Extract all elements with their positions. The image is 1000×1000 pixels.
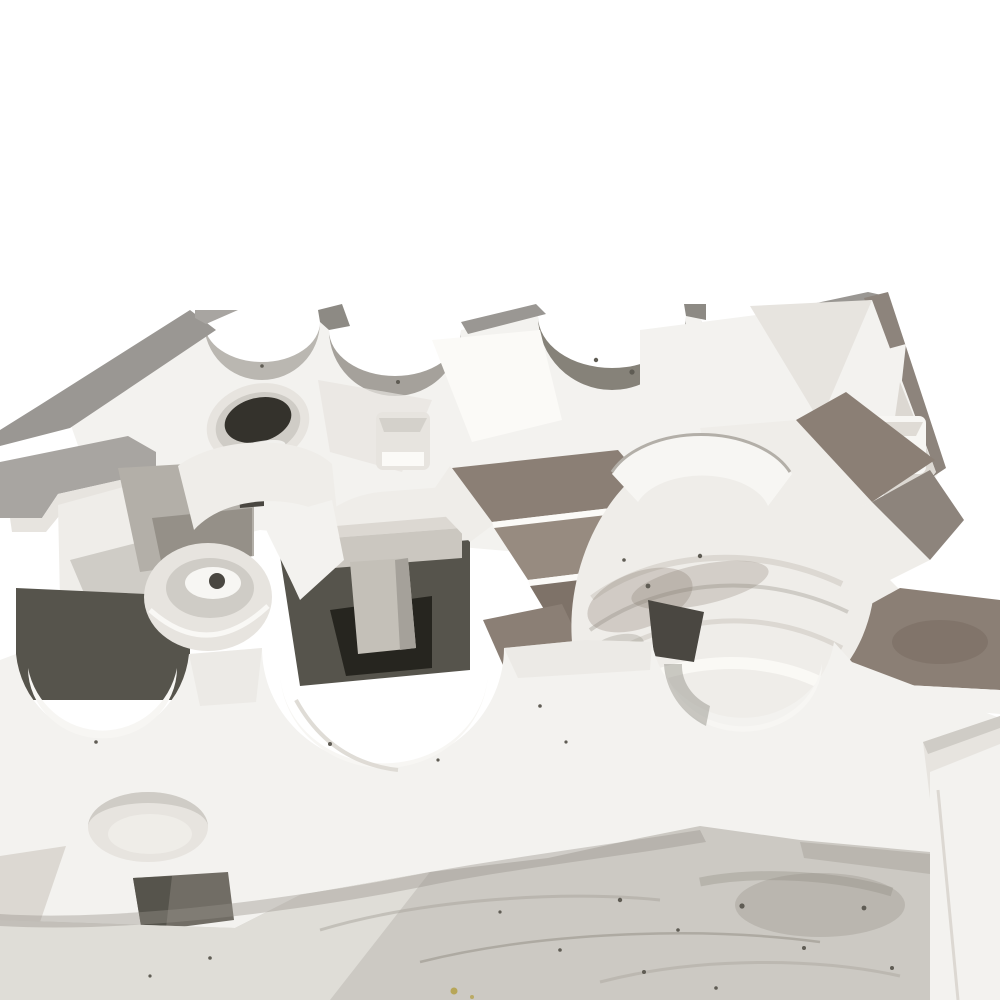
floor-yellow-speck-2 xyxy=(470,995,474,999)
floor-speck-1 xyxy=(618,898,622,902)
floor-speck-6 xyxy=(890,966,894,970)
floor-speck-12 xyxy=(714,986,718,990)
rib-face xyxy=(930,744,1000,1000)
floor-speck-10 xyxy=(148,974,151,977)
floor-yellow-speck-1 xyxy=(451,988,458,995)
bowl-hole xyxy=(209,573,225,589)
floor-speck-5 xyxy=(862,906,867,911)
wall-speck-c xyxy=(328,742,332,746)
floor-speck-2 xyxy=(676,928,680,932)
floor-speck-3 xyxy=(739,903,744,908)
photo-canvas xyxy=(0,0,1000,1000)
wall-speck-a xyxy=(538,704,542,708)
floor-speck-7 xyxy=(558,948,562,952)
drum-speck-c xyxy=(622,558,626,562)
floor-speck-8 xyxy=(498,910,501,913)
bore-speck-c xyxy=(396,380,400,384)
floor-speck-4 xyxy=(802,946,806,950)
bore-speck-b xyxy=(629,369,634,374)
drum-speck-a xyxy=(646,584,651,589)
casting-photo xyxy=(0,0,1000,1000)
step3-deck-stain xyxy=(892,620,988,664)
floor-speck-9 xyxy=(208,956,212,960)
wall-plateau-shade-1 xyxy=(189,648,262,706)
wall-speck-b xyxy=(564,740,567,743)
pocket-left-glow xyxy=(382,452,424,466)
front-recess-floor xyxy=(108,814,192,854)
wall-speck-e xyxy=(94,740,98,744)
floor-speck-11 xyxy=(642,970,646,974)
drum-speck-d xyxy=(698,554,702,558)
right-rib xyxy=(923,716,1000,1000)
wall-speck-d xyxy=(436,758,439,761)
bore-speck-d xyxy=(260,364,264,368)
bore-speck-a xyxy=(594,358,598,362)
pocket-left-inner-shadow xyxy=(379,418,427,432)
